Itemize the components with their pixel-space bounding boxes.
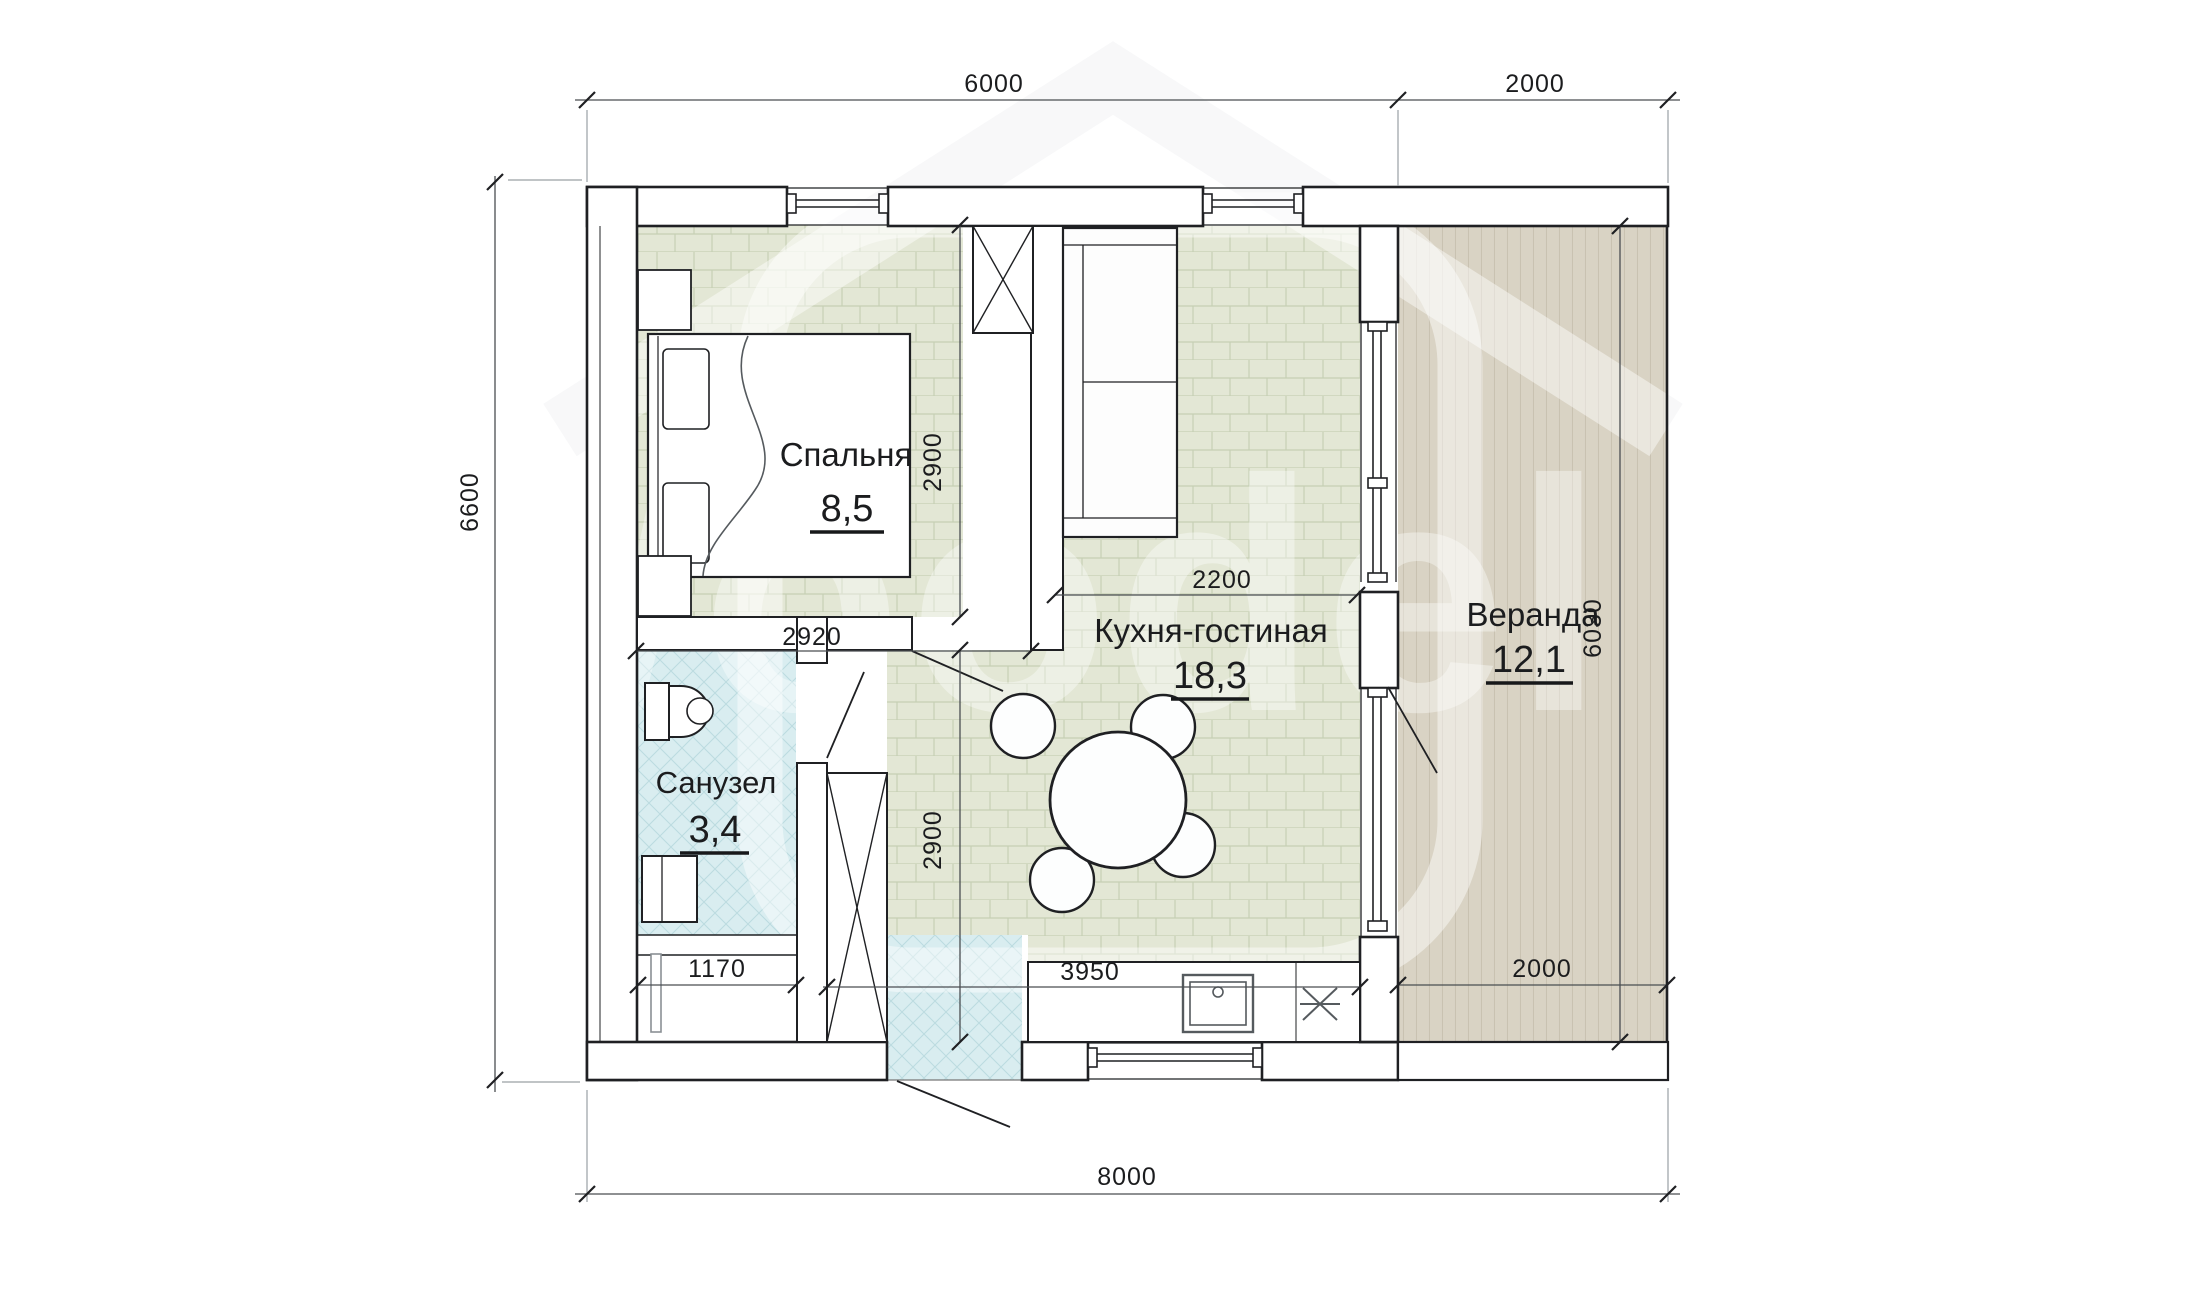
- wardrobe-hall: [827, 773, 887, 1042]
- sofa: [1063, 228, 1177, 537]
- dim-kitchen-width: 2200: [1192, 566, 1252, 594]
- dim-top-main: 6000: [964, 70, 1024, 98]
- svg-text:8,5: 8,5: [821, 488, 874, 530]
- svg-text:Санузел: Санузел: [656, 765, 777, 800]
- nightstand-top: [638, 270, 691, 330]
- washing-machine: [642, 856, 697, 922]
- dim-veranda-width: 2000: [1512, 955, 1572, 983]
- dim-bottom-total: 8000: [1097, 1163, 1157, 1191]
- svg-text:Веранда: Веранда: [1467, 596, 1601, 633]
- entry-door-leaf: [897, 1081, 1010, 1127]
- floor-plan-page: Woodel: [0, 0, 2200, 1290]
- towel-radiator: [651, 954, 661, 1032]
- dim-kitchen-depth: 2900: [919, 810, 947, 870]
- svg-text:18,3: 18,3: [1173, 655, 1247, 697]
- dim-counter-span: 3950: [1060, 958, 1120, 986]
- nightstand-bottom: [638, 556, 691, 616]
- wardrobe-bedroom: [973, 226, 1033, 333]
- floor-plan-canvas: Woodel: [0, 0, 2200, 1290]
- svg-text:3,4: 3,4: [689, 809, 742, 851]
- svg-text:Кухня-гостиная: Кухня-гостиная: [1094, 612, 1327, 649]
- window-kitchen-bottom: [1088, 1043, 1262, 1079]
- dim-bedroom-width: 2920: [782, 623, 842, 651]
- svg-text:Спальня: Спальня: [780, 436, 913, 473]
- dim-left-total: 6600: [456, 472, 484, 532]
- dim-bathroom-width: 1170: [688, 955, 746, 983]
- svg-text:12,1: 12,1: [1492, 639, 1566, 681]
- bathroom-floor-lines: [638, 935, 796, 955]
- dim-bedroom-depth: 2900: [919, 432, 947, 492]
- dim-top-veranda: 2000: [1505, 70, 1565, 98]
- dining-table: [1050, 732, 1186, 868]
